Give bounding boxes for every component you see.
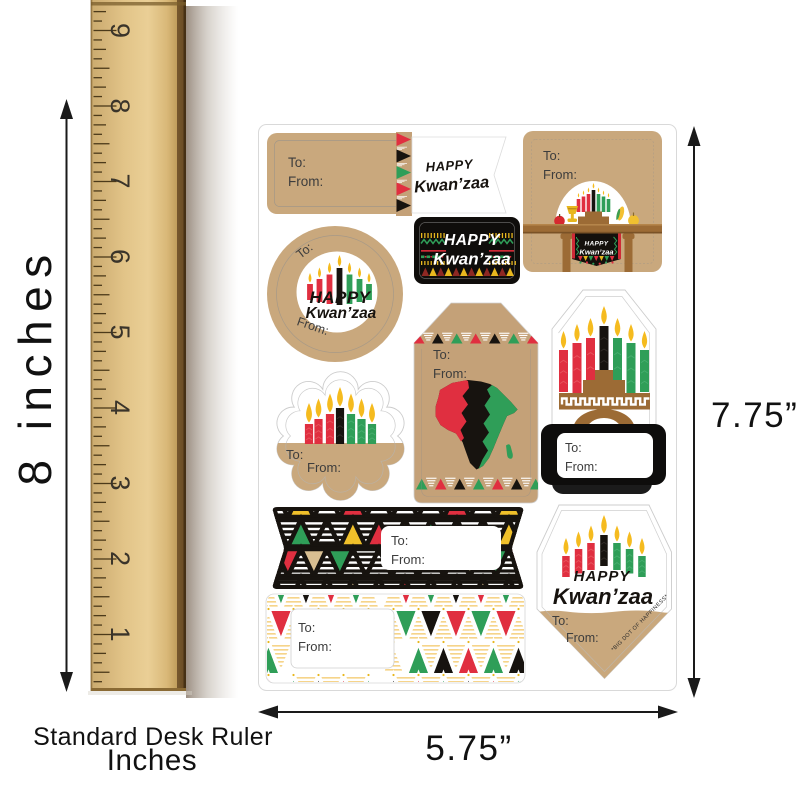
svg-text:From:: From: <box>391 552 425 567</box>
svg-text:To:: To: <box>433 347 450 362</box>
svg-text:From:: From: <box>307 460 341 475</box>
svg-text:5.75”: 5.75” <box>425 729 512 768</box>
svg-text:5: 5 <box>105 324 135 339</box>
svg-text:To:: To: <box>298 620 315 635</box>
svg-text:To:: To: <box>543 148 560 163</box>
svg-text:HAPPY: HAPPY <box>574 568 632 585</box>
svg-text:HAPPY: HAPPY <box>585 241 609 248</box>
svg-text:Kwanʼzaa: Kwanʼzaa <box>433 250 510 269</box>
svg-text:8 inches: 8 inches <box>9 246 61 485</box>
svg-text:7.75”: 7.75” <box>711 396 798 435</box>
svg-text:4: 4 <box>105 400 135 415</box>
svg-text:From:: From: <box>543 167 577 182</box>
svg-text:9: 9 <box>105 23 135 38</box>
svg-text:Inches: Inches <box>107 744 198 777</box>
svg-text:8: 8 <box>105 98 135 113</box>
svg-text:7: 7 <box>105 173 135 188</box>
svg-text:Kwanʼzaa: Kwanʼzaa <box>553 584 653 609</box>
svg-text:To:: To: <box>288 155 306 170</box>
svg-text:HAPPY: HAPPY <box>444 232 501 249</box>
svg-text:2: 2 <box>105 551 135 566</box>
svg-text:From:: From: <box>433 366 467 381</box>
svg-text:3: 3 <box>105 475 135 490</box>
svg-text:To:: To: <box>565 441 582 455</box>
svg-text:To:: To: <box>552 614 569 628</box>
svg-text:From:: From: <box>566 631 599 645</box>
svg-text:From:: From: <box>298 639 332 654</box>
svg-text:To:: To: <box>391 533 408 548</box>
svg-text:Kwanʼzaa: Kwanʼzaa <box>579 248 613 257</box>
svg-text:To:: To: <box>286 447 303 462</box>
svg-text:From:: From: <box>288 174 323 189</box>
svg-text:6: 6 <box>105 249 135 264</box>
svg-text:1: 1 <box>105 626 135 641</box>
svg-text:From:: From: <box>565 460 598 474</box>
